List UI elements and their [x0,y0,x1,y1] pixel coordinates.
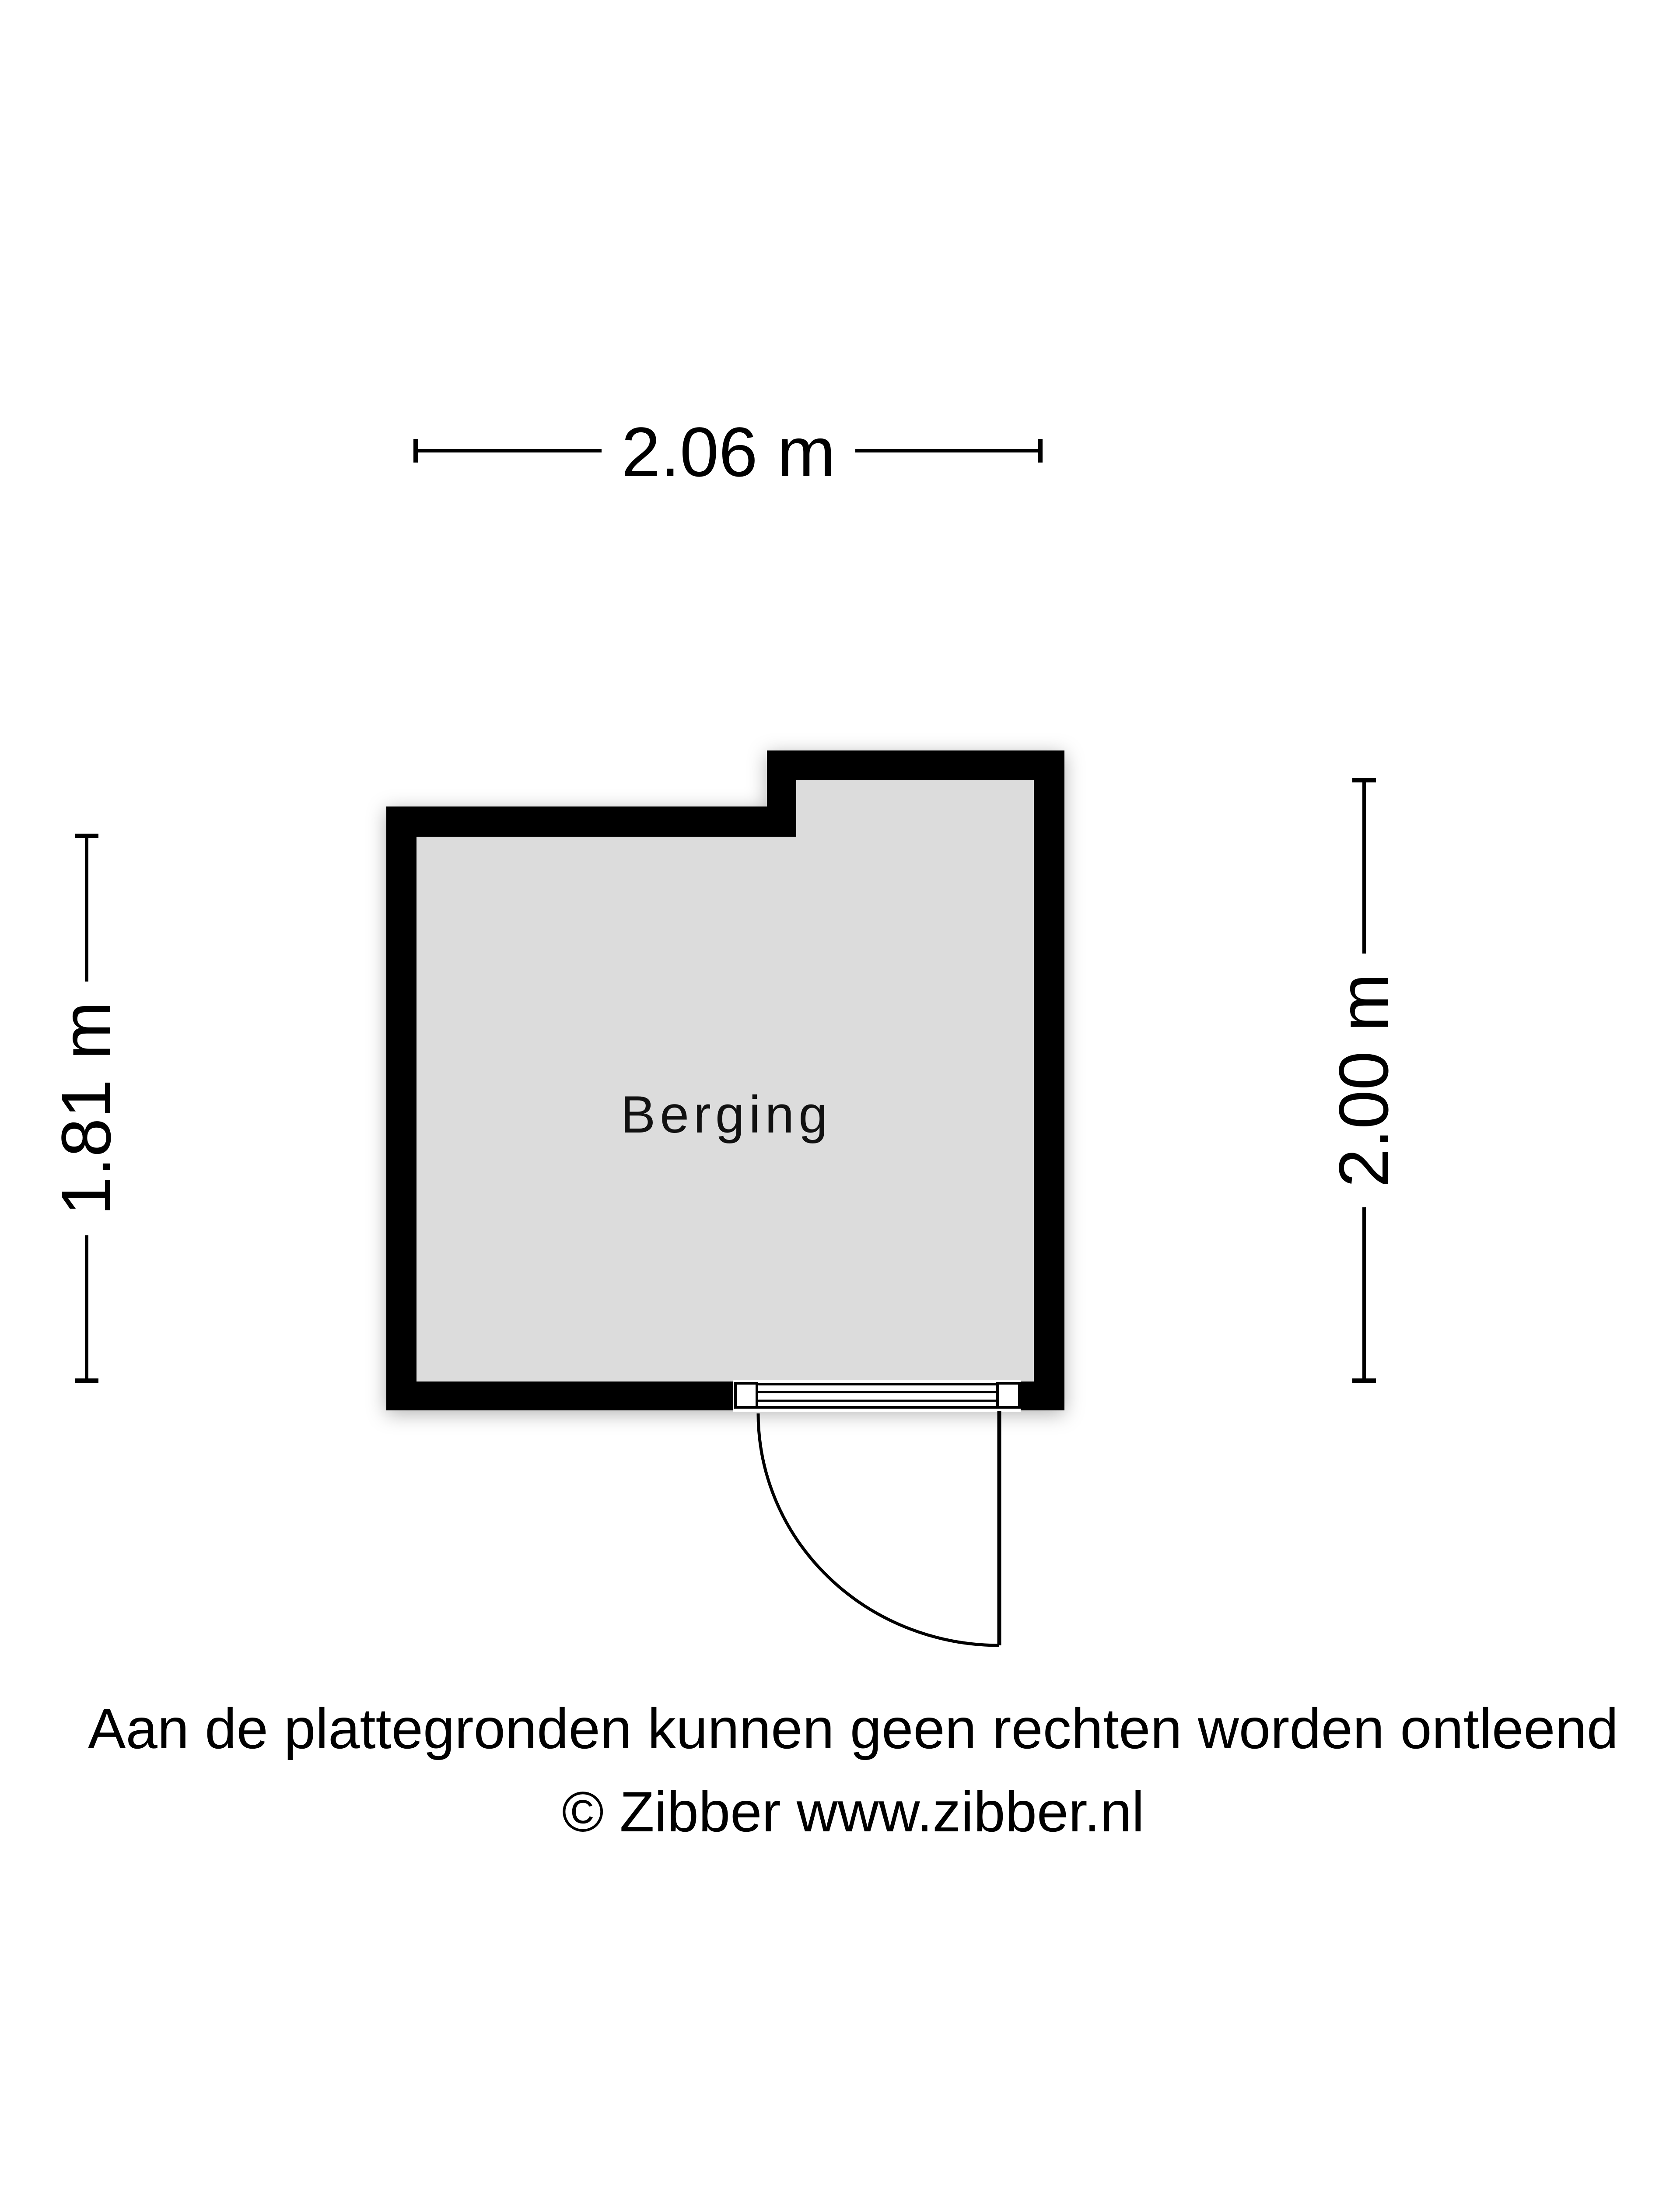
door [733,1380,1021,1645]
disclaimer-text: Aan de plattegronden kunnen geen rechten… [88,1697,1618,1760]
copyright-text: © Zibber www.zibber.nl [562,1780,1144,1844]
room-label: Berging [620,1085,832,1144]
dimension-top: 2.06 m [416,413,1040,491]
door-swing-arc [758,1413,999,1645]
room-floor [416,780,1034,1382]
dimension-top-label: 2.06 m [621,413,835,491]
door-threshold [757,1384,997,1407]
door-jamb-right [997,1383,1019,1407]
dimension-left-label: 1.81 m [47,1001,125,1215]
footer: Aan de plattegronden kunnen geen rechten… [88,1697,1618,1844]
room: Berging [386,750,1064,1410]
door-jamb-left [735,1383,757,1407]
dimension-right: 2.00 m [1324,780,1403,1381]
floorplan-canvas: Berging 2.06 m 1.81 m 2.00 m Aan d [0,0,1680,2188]
dimension-left: 1.81 m [47,836,125,1381]
dimension-right-label: 2.00 m [1324,973,1403,1187]
